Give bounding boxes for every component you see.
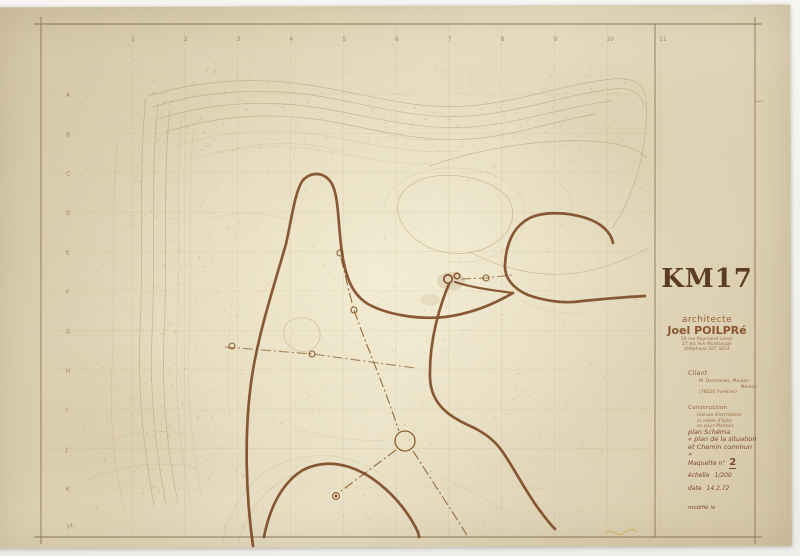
client-heading: Client	[688, 370, 708, 377]
survey-line-southeast	[413, 451, 468, 537]
maquette-number: 2	[729, 457, 736, 469]
left-ruler-letter: C	[66, 171, 70, 178]
left-ruler-letter: A	[66, 92, 71, 99]
top-ruler-number: 4	[289, 36, 293, 43]
date-value: 14.2.72	[707, 485, 730, 492]
road-knot-approach	[455, 282, 513, 293]
left-ruler-letter: D	[66, 210, 71, 217]
top-ruler-number: 6	[395, 36, 399, 43]
top-ruler-number: 1	[131, 36, 135, 43]
drawing-content: 1234567891011 ABCDEFGHIJK	[0, 0, 800, 556]
architect-address-line: téléphone 587 4854	[655, 347, 759, 352]
left-ruler-letter: H	[66, 368, 71, 375]
scale-row: échelle1/200	[688, 472, 732, 479]
modified-label: modifié le	[688, 505, 715, 511]
architect-name: Joel POILPRé	[655, 324, 759, 337]
top-ruler-numbers: 1234567891011	[131, 36, 667, 43]
top-ruler-number: 11	[659, 36, 667, 43]
left-ruler-letter: I	[66, 407, 68, 414]
survey-line-southwest	[341, 450, 396, 491]
client-details: M. Desmarais, Meulan Meulan (78250 Yveli…	[699, 379, 757, 396]
left-ruler-letters: ABCDEFGHIJK	[65, 92, 71, 493]
top-ruler-number: 9	[553, 36, 557, 43]
left-ruler-letter: J	[65, 447, 68, 454]
architect-address: 16 rue Raymond Lavoir 27 bis Ave Montsau…	[655, 337, 759, 353]
top-ruler-number: 5	[342, 36, 346, 43]
date-row: date14.2.72	[688, 485, 729, 492]
survey-main-circle	[395, 431, 415, 451]
corner-pencil-mark: H	[66, 522, 73, 532]
top-ruler-number: 7	[448, 36, 452, 43]
survey-node	[351, 307, 357, 313]
construction-heading: Construction	[688, 405, 728, 411]
modified-row: modifié le	[688, 505, 715, 511]
terrain-texture-marks	[79, 58, 646, 528]
left-ruler-letter: K	[66, 486, 71, 493]
maquette-row: Maquette n°2	[688, 457, 736, 468]
maquette-label: Maquette n°	[688, 460, 725, 467]
scale-label: échelle	[688, 472, 710, 479]
left-ruler-letter: E	[66, 250, 70, 257]
photo-background: 1234567891011 ABCDEFGHIJK	[0, 0, 800, 556]
survey-lines	[225, 258, 512, 537]
top-ruler-number: 10	[606, 36, 614, 43]
left-ruler-letter: F	[66, 289, 70, 296]
sheet-title: KM17	[655, 264, 759, 294]
road-lines	[247, 174, 645, 546]
left-ruler-letter: G	[66, 328, 71, 335]
left-ruler-letter: B	[66, 131, 70, 138]
scale-value: 1/200	[715, 472, 732, 479]
pencil-annotation-mark	[605, 530, 637, 535]
top-ruler-number: 8	[501, 36, 505, 43]
top-ruler-number: 2	[184, 36, 188, 43]
top-ruler-number: 3	[237, 36, 241, 43]
road-c-curve	[505, 213, 645, 302]
handwritten-notes: plan Schéma « plan de la situation et Ch…	[688, 429, 758, 459]
road-main-loop	[247, 174, 513, 546]
date-label: date	[688, 485, 702, 492]
client-line: (78250 Yvelines)	[699, 390, 757, 396]
client-line: M. Desmarais, Meulan	[699, 379, 757, 385]
survey-node-dot	[335, 495, 337, 497]
